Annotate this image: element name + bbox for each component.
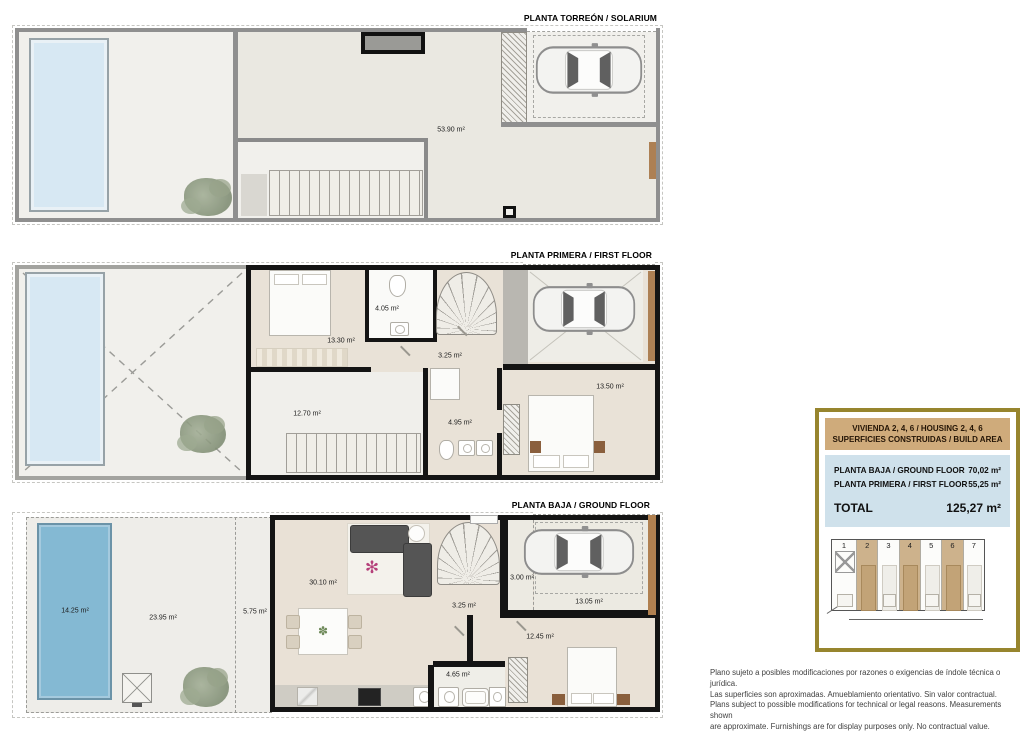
unit-number: 6 [942, 541, 962, 550]
siteplan-unit-2: 2 [857, 540, 878, 610]
legend-row-value: 70,02 m² [968, 464, 1001, 478]
area-label-solarium: 53.90 m² [437, 127, 465, 134]
nightstand-icon [552, 694, 565, 705]
door-mark [400, 346, 410, 356]
sink-icon [390, 322, 409, 336]
wall [497, 368, 502, 410]
area-label-bath: 4.65 m² [446, 672, 470, 679]
siteplan-unit-3: 3 [878, 540, 899, 610]
area-label-entry: 3.00 m² [510, 575, 534, 582]
disclaimer-line: Plans subject to possible modifications … [710, 700, 1016, 722]
area-label-bedroom1: 13.30 m² [327, 338, 355, 345]
chimney [361, 32, 425, 54]
siteplan-drawing: 1 2 3 4 5 [831, 539, 985, 611]
unit-number: 4 [900, 541, 920, 550]
area-label-porch: 5.75 m² [243, 609, 267, 616]
side-table-icon [408, 525, 425, 542]
unit-core [861, 565, 876, 610]
disclaimer-line: Plano sujeto a posibles modificaciones p… [710, 668, 1016, 690]
siteplan-unit-5: 5 [921, 540, 942, 610]
wall [497, 433, 502, 475]
wall [251, 367, 371, 372]
area-label-pool: 14.25 m² [61, 608, 89, 615]
siteplan-unit-7: 7 [964, 540, 984, 610]
boundary-fence [648, 515, 656, 615]
plant-icon [318, 623, 328, 639]
wall [233, 32, 238, 218]
wall [433, 661, 505, 667]
plant-icon [365, 559, 379, 577]
unit-bay [925, 594, 938, 607]
title-solarium: PLANTA TORREÓN / SOLARIUM [450, 13, 657, 23]
legend-row-label: PLANTA BAJA / GROUND FLOOR [834, 464, 965, 478]
sink-icon [438, 687, 459, 707]
legend-header: VIVIENDA 2, 4, 6 / HOUSING 2, 4, 6 SUPER… [825, 418, 1010, 450]
nightstand-icon [617, 694, 630, 705]
cooktop-icon [358, 688, 381, 706]
boundary-fence [648, 271, 655, 361]
building: 13.30 m² 4.05 m² 3.25 m² 13.50 m² 12.70 … [246, 265, 660, 480]
building [270, 515, 660, 712]
sink-icon [476, 440, 493, 456]
floorplan-sheet: PLANTA TORREÓN / SOLARIUM PLANTA PRIMERA… [0, 0, 1024, 732]
wall [503, 364, 655, 370]
legend-header-line2: SUPERFICIES CONSTRUIDAS / BUILD AREA [827, 434, 1008, 445]
unit-number: 3 [878, 541, 898, 550]
site-boundary-line [849, 619, 983, 620]
area-label-garden: 23.95 m² [149, 615, 177, 622]
unit-core [903, 565, 918, 610]
nightstand-icon [594, 441, 605, 453]
tree-icon [180, 415, 226, 453]
chair-icon [286, 615, 300, 629]
title-ground-floor: PLANTA BAJA / GROUND FLOOR [443, 500, 650, 510]
disclaimer: Plano sujeto a posibles modificaciones p… [710, 668, 1016, 732]
sink-icon [458, 440, 475, 456]
fridge-icon [297, 687, 318, 706]
unit-number: 7 [964, 541, 984, 550]
title-first-floor: PLANTA PRIMERA / FIRST FLOOR [445, 250, 652, 260]
legend-row-label: PLANTA PRIMERA / FIRST FLOOR [834, 478, 967, 492]
bed-icon [528, 395, 594, 472]
floor-plan-solarium: 53.90 m² [15, 28, 660, 222]
siteplan-key: 1 2 3 4 5 [825, 537, 1010, 621]
pool [25, 272, 105, 466]
legend-header-line1: VIVIENDA 2, 4, 6 / HOUSING 2, 4, 6 [827, 423, 1008, 434]
column-marker [503, 206, 516, 218]
toilet-icon [439, 440, 454, 460]
car-icon [532, 282, 636, 336]
area-label-living: 30.10 m² [309, 580, 337, 587]
stairs-icon [436, 272, 497, 335]
carport-wall [503, 270, 528, 366]
car-icon [523, 525, 635, 579]
unit-number: 1 [832, 541, 856, 550]
legend-box: VIVIENDA 2, 4, 6 / HOUSING 2, 4, 6 SUPER… [815, 408, 1020, 652]
wall [501, 122, 656, 127]
area-label-hall: 3.25 m² [452, 603, 476, 610]
washer-icon [489, 687, 506, 707]
pool [29, 38, 109, 212]
unit-pool-mark [835, 551, 855, 573]
planter-cross [123, 674, 151, 702]
unit-bay [883, 594, 896, 607]
wall [428, 665, 434, 707]
area-label-bath1: 4.05 m² [375, 306, 399, 313]
sofa-icon [403, 543, 432, 597]
chair-icon [348, 635, 362, 649]
door-mark [454, 626, 464, 636]
legend-table: PLANTA BAJA / GROUND FLOOR 70,02 m² PLAN… [825, 455, 1010, 527]
legend-row-value: 55,25 m² [968, 478, 1001, 492]
disclaimer-line: are approximate. Furnishings are for dis… [710, 722, 1016, 732]
floor-plan-ground: 14.25 m² 23.95 m² 5.75 m² 30.10 m² 3.25 … [15, 515, 660, 715]
unit-number: 2 [857, 541, 877, 550]
disclaimer-line: Las superficies son aproximadas. Amuebla… [710, 690, 1016, 701]
tree-icon [183, 667, 229, 707]
area-label-terrace: 12.70 m² [293, 411, 321, 418]
area-label-bath2: 4.95 m² [448, 420, 472, 427]
drain-marker [132, 703, 142, 707]
entry-door [470, 515, 498, 524]
boundary-fence [649, 142, 656, 179]
legend-total-row: TOTAL 125,27 m² [834, 501, 1001, 515]
wall [423, 368, 428, 475]
stair-landing [241, 174, 267, 216]
shower-icon [430, 368, 460, 400]
carport-open-edge [527, 28, 656, 32]
legend-total-label: TOTAL [834, 501, 873, 515]
stairs-icon [269, 170, 423, 216]
bed-icon [269, 270, 331, 336]
unit-number: 5 [921, 541, 941, 550]
toilet-icon [389, 275, 406, 297]
wall [500, 520, 508, 610]
wall [467, 615, 473, 665]
siteplan-unit-1: 1 [832, 540, 857, 610]
stairs-icon [286, 433, 421, 473]
planter-box [122, 673, 152, 703]
bathtub-icon [462, 688, 489, 707]
area-label-bedroom2: 13.50 m² [596, 384, 624, 391]
area-label-hall: 3.25 m² [438, 353, 462, 360]
floor-plan-first: 13.30 m² 4.05 m² 3.25 m² 13.50 m² 12.70 … [15, 265, 660, 480]
legend-total-value: 125,27 m² [946, 501, 1001, 515]
wall-hatched [501, 32, 527, 124]
bed-icon [567, 647, 617, 707]
legend-row-first: PLANTA PRIMERA / FIRST FLOOR 55,25 m² [834, 478, 1001, 492]
chair-icon [348, 615, 362, 629]
wardrobe-icon [503, 404, 520, 455]
car-icon [535, 42, 643, 98]
siteplan-unit-4: 4 [900, 540, 921, 610]
carport-open-edge [533, 511, 660, 515]
stairs-icon [437, 522, 500, 585]
wardrobe-icon [508, 657, 528, 703]
area-label-carport: 13.05 m² [575, 599, 603, 606]
unit-bay [837, 594, 852, 607]
legend-row-ground: PLANTA BAJA / GROUND FLOOR 70,02 m² [834, 464, 1001, 478]
wall [500, 610, 655, 618]
door-mark [516, 621, 526, 631]
chair-icon [286, 635, 300, 649]
sofa-icon [350, 525, 409, 553]
siteplan-unit-6: 6 [942, 540, 963, 610]
rug-icon [256, 348, 348, 367]
unit-bay [968, 594, 981, 607]
porch-boundary [235, 517, 236, 713]
tree-icon [184, 178, 232, 216]
unit-core [946, 565, 961, 610]
area-label-bedroom: 12.45 m² [526, 634, 554, 641]
carport-open-edge [523, 261, 655, 265]
nightstand-icon [530, 441, 541, 453]
